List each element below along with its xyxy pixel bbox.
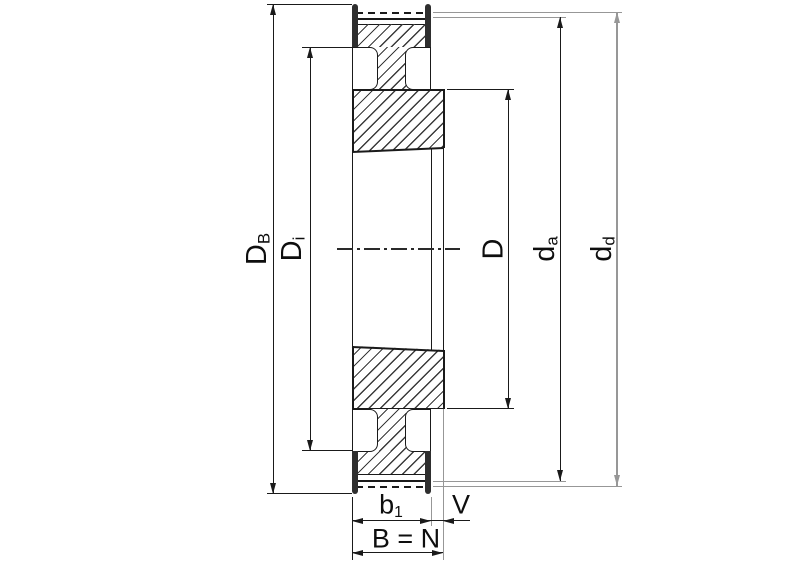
hatch-web-bottom [377,409,406,451]
hatch-hub-bottom [352,346,443,409]
label-dd: dd [588,236,619,262]
arrow-dd-bottom [614,475,620,486]
arrow-d-top [505,89,511,100]
arrow-dd-top [614,12,620,23]
rim-outer-surface-top [358,18,425,20]
bush-right-face-top [443,89,445,148]
ext-line-dd-bottom [433,486,622,487]
hatch-hub-top [352,89,443,152]
label-b1: b1 [379,491,403,520]
arrow-di-bottom [307,440,313,451]
web-recess-bottom-left [352,409,378,452]
web-recess-bottom-right [405,409,431,452]
hub-left-face-top [352,89,354,152]
label-d: D [480,239,509,260]
flange-top-right [425,4,431,47]
label-v: V [452,492,470,519]
ext-line-d-bottom [447,408,514,409]
flange-bottom-left [352,451,358,494]
hatch-web-top [377,47,406,89]
arrow-da-top [557,17,563,28]
hub-top-edge [352,89,443,91]
label-bn: B = N [372,526,440,553]
label-db: DB [243,233,274,265]
arrow-d-bottom [505,398,511,409]
pitch-line-top [356,12,431,14]
web-recess-top-right [405,47,431,90]
arrow-bn-left [352,550,363,556]
dim-line-di [310,47,311,451]
ext-line-bush-face [443,409,444,560]
arrow-db-bottom [270,483,276,494]
ext-line-db-top [267,4,352,5]
ext-line-d-top [447,89,514,90]
hub-bottom-edge [352,408,443,410]
flange-bottom-right [425,451,431,494]
label-da: da [531,236,562,262]
ext-line-dd-top [433,12,622,13]
pitch-line-bottom [356,486,431,488]
bush-right-face-bottom [443,350,445,409]
ext-line-db-bottom [267,493,352,494]
arrow-b1-left [352,518,363,524]
arrow-db-top [270,4,276,15]
flange-top-left [352,4,358,47]
arrow-di-top [307,47,313,58]
hatch-rim-bottom [358,451,425,474]
tooth-root-line-bottom [358,474,425,475]
ext-line-da-top [433,17,566,18]
hatch-rim-top [358,24,425,47]
axis-centerline [337,248,460,249]
web-recess-top-left [352,47,378,90]
ext-line-da-bottom [433,481,566,482]
hub-left-face-bottom [352,346,354,409]
arrow-da-bottom [557,470,563,481]
label-di: Di [278,237,309,262]
rim-outer-surface-bottom [358,480,425,482]
technical-drawing-canvas: DB Di D da dd b1 V B = N [0,0,800,565]
